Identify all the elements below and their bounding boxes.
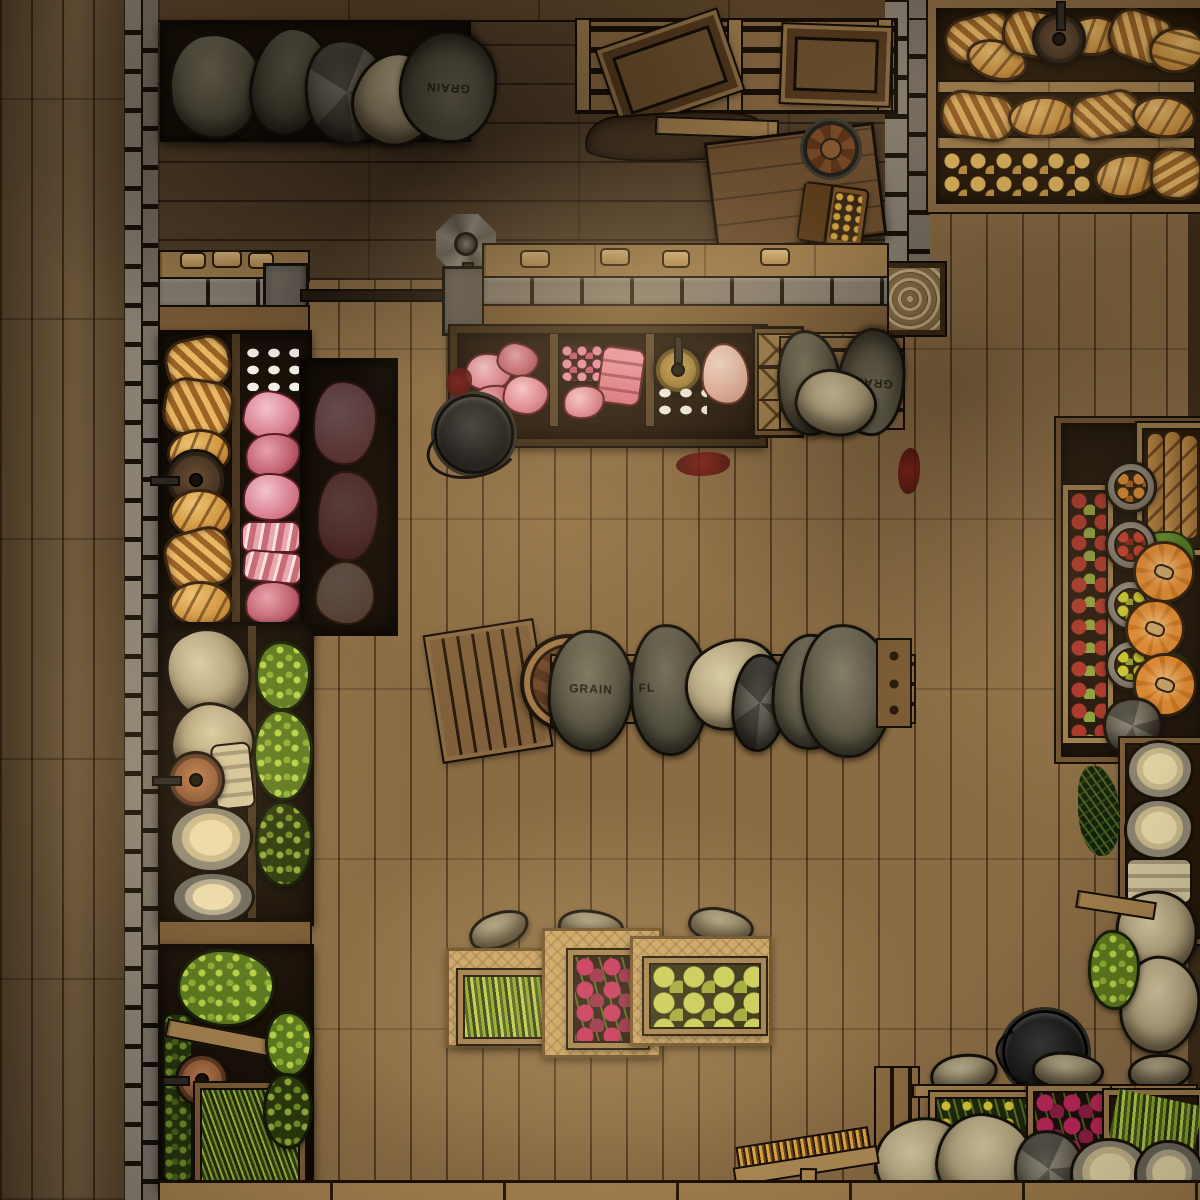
scale-hub: [671, 363, 685, 377]
ham: [244, 579, 303, 627]
greens-shelf: [158, 944, 314, 1188]
satchel-coins: [829, 191, 863, 242]
stone-wall-left: [125, 0, 158, 1200]
scale-rod: [162, 1076, 190, 1086]
fruit-bowl: [1105, 461, 1157, 513]
apple-crate: [1063, 485, 1113, 743]
artichokes: [651, 965, 759, 1027]
pumpkin: [1125, 599, 1185, 659]
counter-rail: [300, 289, 446, 302]
slatted-bench: [575, 18, 898, 114]
coin-satchel: [796, 181, 870, 250]
bread-roll: [520, 250, 550, 268]
ham: [243, 473, 301, 521]
counter-front: [158, 305, 310, 333]
shadowed-meat-rack: [300, 358, 398, 636]
bread-loaf: [1130, 93, 1198, 141]
bread-roll: [212, 250, 242, 268]
peg-bench: [876, 638, 912, 728]
stone-course: [141, 0, 159, 1200]
diced-meat: [561, 345, 603, 381]
hanging-carcass: [313, 381, 377, 465]
cheese-wheel-sack: [171, 871, 255, 925]
outer-floor-planks: [0, 0, 125, 1200]
stone-course: [907, 0, 931, 270]
scale-rod: [150, 476, 180, 486]
sack-pallet: GRAIN: [775, 328, 905, 432]
bottom-stock-area: [872, 1056, 1200, 1200]
orange-fruit: [1114, 470, 1148, 504]
produce-tables: [438, 918, 772, 1070]
apples: [1070, 492, 1106, 736]
cheese-wheel-sack: [1126, 740, 1194, 800]
tankard: [800, 118, 862, 180]
cheese-wheel-sack: [1124, 798, 1194, 860]
hanging-carcass: [317, 471, 379, 561]
stock-row: GRAIN FL: [432, 612, 910, 752]
lettuce-crate: [255, 641, 311, 711]
grain-sack-label: GRAIN: [402, 79, 495, 98]
scale-rod: [1056, 1, 1066, 31]
scale-hub: [189, 473, 203, 487]
produce-shelf: [1056, 418, 1200, 762]
eggs: [243, 345, 299, 391]
stone-course: [125, 0, 141, 1200]
cheese-and-sack-shelf: [1076, 744, 1200, 1066]
scale-rod: [674, 336, 683, 364]
lettuce-crate: [255, 801, 313, 887]
hanging-carcass: [315, 561, 375, 625]
baguette: [1180, 434, 1199, 540]
bread-roll: [662, 250, 690, 268]
artichoke-crate: [644, 958, 766, 1034]
sack-and-cheese-shelf: [158, 622, 314, 926]
market-shop-battlemap: GRAIN: [0, 0, 1200, 1200]
pork-chop: [561, 383, 606, 421]
display-divider: [645, 333, 655, 427]
shelf-divider: [231, 333, 241, 625]
lettuce-crate: [263, 1073, 313, 1149]
cheese-wheel-sack: [169, 805, 253, 873]
bread-shelf: [928, 0, 1200, 212]
scale-hub: [189, 773, 203, 787]
bacon-slab: [241, 521, 301, 553]
lidded-crate: [781, 24, 892, 106]
lettuce-head: [177, 949, 275, 1027]
lettuce-crate: [265, 1011, 313, 1077]
hanging-scale: [167, 751, 225, 809]
scale-hub: [1052, 32, 1066, 46]
eggs: [655, 385, 707, 421]
bread-rolls: [940, 150, 1090, 196]
bread-loaf: [1007, 94, 1078, 141]
bread-roll: [180, 252, 206, 269]
bench-bar: [575, 18, 591, 112]
braided-loaf: [1148, 146, 1200, 202]
hanging-scale: [1032, 12, 1086, 66]
bread-roll: [600, 248, 630, 266]
display-divider: [549, 333, 559, 427]
bread-and-meat-shelf: [158, 330, 312, 632]
lettuce-crate: [253, 709, 313, 801]
grain-sack-shelf: GRAIN: [160, 20, 471, 142]
gear-hub: [454, 232, 478, 256]
herb-bundles: [1078, 766, 1120, 856]
bread-roll: [760, 248, 790, 266]
bottom-counter: [158, 1180, 1200, 1200]
pumpkin: [1133, 541, 1195, 603]
lettuce-crate: [1088, 930, 1140, 1010]
scale-rod: [152, 776, 182, 786]
